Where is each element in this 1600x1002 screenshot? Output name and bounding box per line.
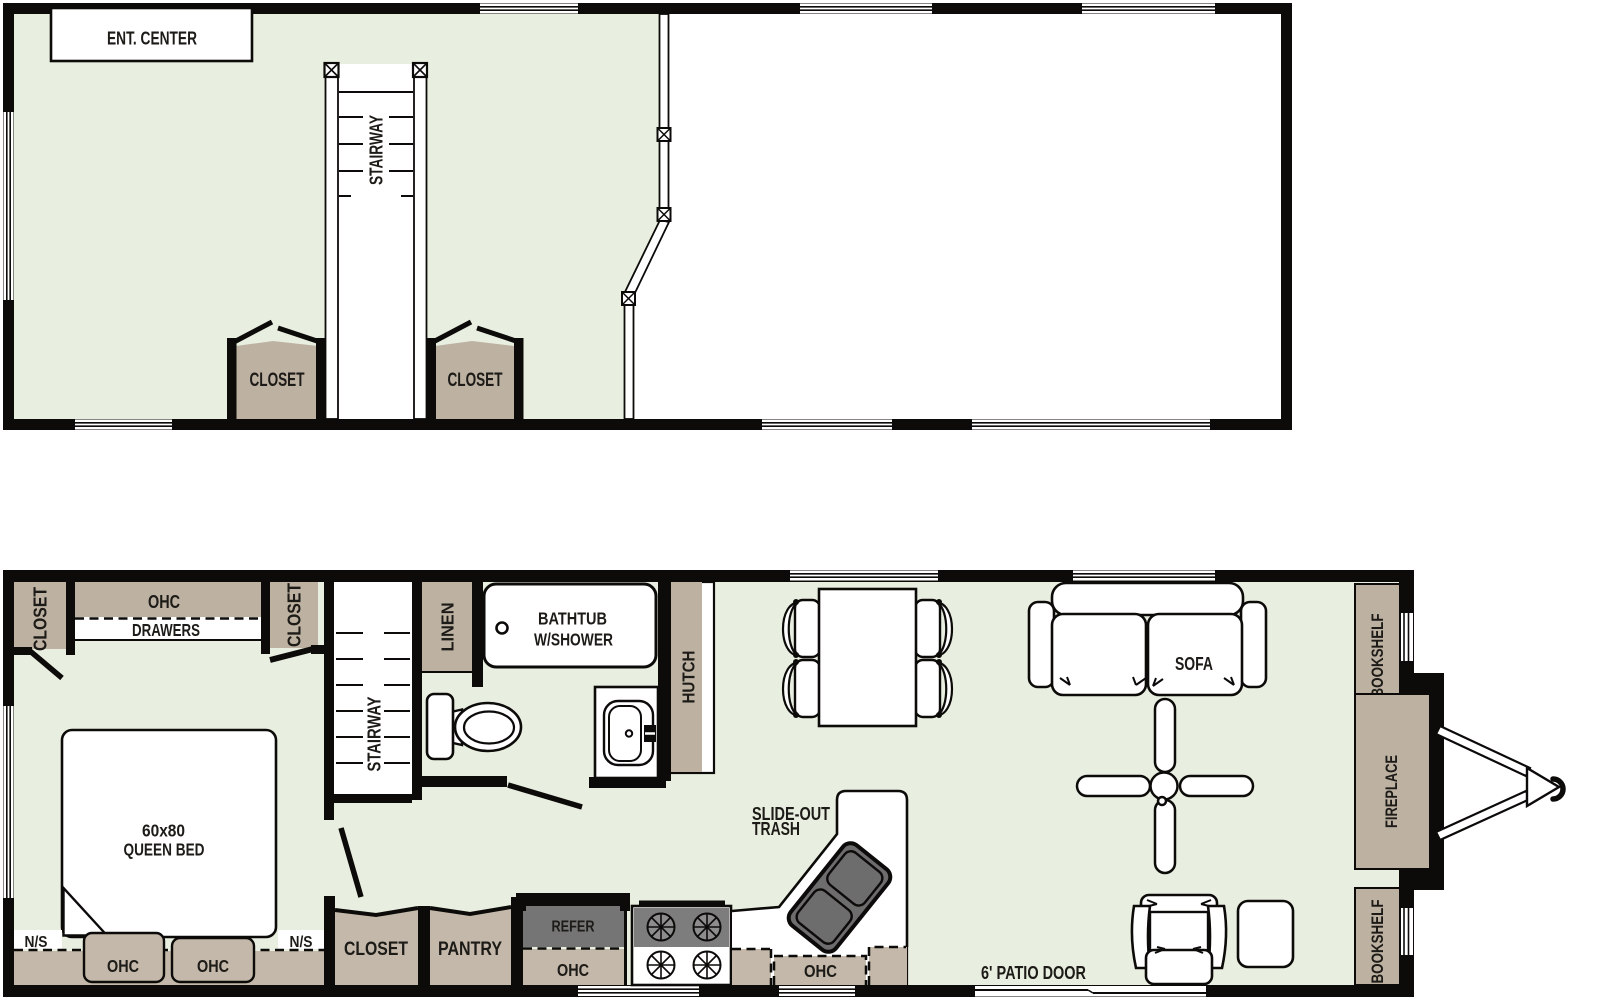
svg-text:BOOKSHELF: BOOKSHELF bbox=[1369, 900, 1387, 984]
svg-text:HUTCH: HUTCH bbox=[679, 651, 699, 704]
svg-text:6' PATIO DOOR: 6' PATIO DOOR bbox=[981, 962, 1086, 983]
svg-text:CLOSET: CLOSET bbox=[448, 370, 503, 391]
svg-text:OHC: OHC bbox=[197, 956, 229, 976]
svg-text:FIREPLACE: FIREPLACE bbox=[1383, 755, 1401, 828]
svg-text:OHC: OHC bbox=[107, 956, 139, 976]
svg-text:ENT. CENTER: ENT. CENTER bbox=[107, 28, 197, 49]
svg-text:STAIRWAY: STAIRWAY bbox=[364, 696, 385, 772]
svg-text:REFER: REFER bbox=[552, 919, 595, 936]
svg-text:OHC: OHC bbox=[148, 591, 180, 612]
svg-text:CLOSET: CLOSET bbox=[344, 939, 408, 960]
svg-text:OHC: OHC bbox=[557, 960, 589, 980]
svg-text:60x80: 60x80 bbox=[142, 821, 185, 841]
svg-text:PANTRY: PANTRY bbox=[438, 939, 502, 960]
svg-text:BATHTUB: BATHTUB bbox=[538, 609, 607, 629]
svg-text:STAIRWAY: STAIRWAY bbox=[366, 115, 387, 185]
svg-text:DRAWERS: DRAWERS bbox=[132, 620, 200, 640]
svg-text:N/S: N/S bbox=[290, 934, 313, 951]
svg-text:N/S: N/S bbox=[25, 934, 48, 951]
svg-text:CLOSET: CLOSET bbox=[284, 582, 305, 647]
svg-text:CLOSET: CLOSET bbox=[30, 586, 51, 651]
svg-text:W/SHOWER: W/SHOWER bbox=[534, 630, 613, 650]
svg-text:TRASH: TRASH bbox=[752, 819, 800, 839]
svg-text:SOFA: SOFA bbox=[1175, 654, 1213, 674]
svg-text:QUEEN BED: QUEEN BED bbox=[124, 840, 205, 860]
svg-text:OHC: OHC bbox=[804, 961, 837, 981]
svg-text:BOOKSHELF: BOOKSHELF bbox=[1369, 614, 1387, 698]
svg-text:CLOSET: CLOSET bbox=[250, 370, 305, 391]
svg-text:LINEN: LINEN bbox=[438, 603, 458, 652]
